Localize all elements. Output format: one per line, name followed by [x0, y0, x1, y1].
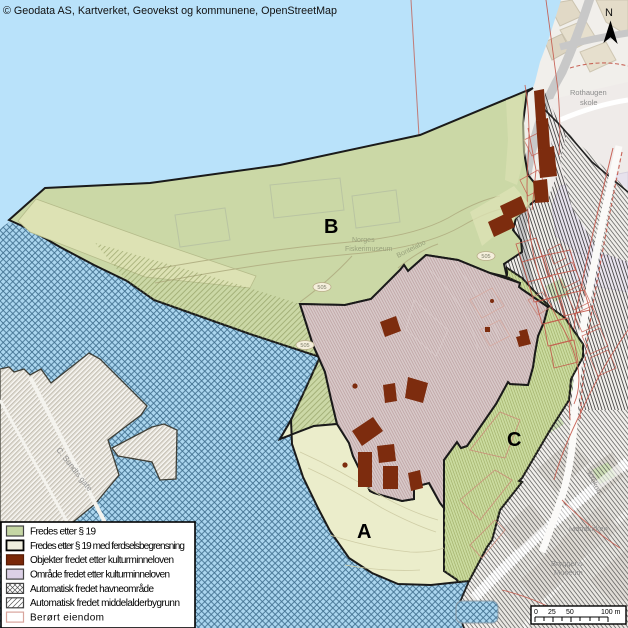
svg-text:C: C	[507, 429, 521, 451]
svg-text:0: 0	[534, 609, 538, 616]
svg-text:Fredes etter § 19 med ferdsels: Fredes etter § 19 med ferdselsbegrensnin…	[30, 541, 185, 552]
svg-text:Rothaugen: Rothaugen	[570, 88, 607, 97]
svg-text:25: 25	[548, 609, 556, 616]
svg-text:Bryggens: Bryggens	[551, 559, 583, 568]
svg-text:Fiskerimuseum: Fiskerimuseum	[345, 246, 393, 253]
svg-text:Fredes etter § 19: Fredes etter § 19	[30, 527, 96, 538]
svg-text:Museum: Museum	[554, 568, 583, 577]
svg-text:B: B	[324, 216, 338, 238]
svg-text:505: 505	[481, 254, 490, 260]
svg-text:N: N	[605, 7, 613, 19]
svg-text:505: 505	[317, 285, 326, 291]
svg-text:50: 50	[566, 609, 574, 616]
svg-text:Område fredet etter kulturminn: Område fredet etter kulturminneloven	[30, 569, 170, 581]
svg-text:Automatisk fredet middelalderb: Automatisk fredet middelalderbygrunn	[30, 598, 180, 609]
svg-text:100 m: 100 m	[601, 609, 621, 616]
svg-text:Norges: Norges	[352, 237, 375, 244]
svg-text:Mariakirken: Mariakirken	[569, 524, 608, 533]
svg-text:Berørt eiendom: Berørt eiendom	[30, 613, 104, 624]
svg-text:A: A	[357, 521, 371, 543]
svg-text:© Geodata AS, Kartverket, Geov: © Geodata AS, Kartverket, Geovekst og ko…	[3, 5, 337, 17]
svg-text:505: 505	[300, 343, 309, 349]
svg-text:skole: skole	[580, 98, 598, 107]
svg-text:Objekter fredet etter kulturmi: Objekter fredet etter kulturminneloven	[30, 555, 174, 566]
svg-text:Automatisk fredet havneområde: Automatisk fredet havneområde	[30, 583, 154, 595]
